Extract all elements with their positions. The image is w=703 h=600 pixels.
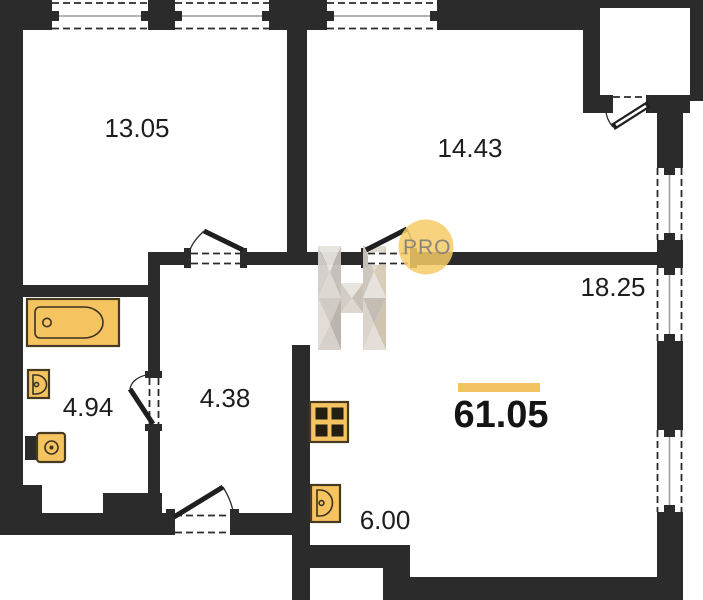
room-label-18-25: 18.25 [580, 272, 645, 302]
wall-bottom-step-block [383, 545, 410, 600]
wall-between-bedrooms [287, 30, 307, 253]
bathtub [27, 299, 119, 346]
room-label-6-00: 6.00 [360, 505, 411, 535]
niche-bottom-right [652, 95, 690, 113]
total-area: 61.05 [453, 383, 548, 436]
total-area-label: 61.05 [453, 394, 548, 436]
room-label-4-94: 4.94 [63, 392, 114, 422]
wall-bottom-left-a [0, 513, 168, 535]
window-right-1 [658, 168, 682, 240]
wall-bathroom-top [23, 285, 148, 297]
watermark-pro-badge: PRO [399, 220, 454, 275]
window-top-3 [327, 3, 437, 29]
toilet [25, 433, 65, 462]
window-top-1 [52, 3, 148, 29]
door-entrance [174, 487, 233, 535]
room-label-4-38: 4.38 [200, 383, 251, 413]
room-label-14-43: 14.43 [437, 133, 502, 163]
stove [310, 402, 348, 442]
jamb-entry-right [230, 509, 239, 535]
niche-right-wall [690, 0, 703, 101]
window-right-2 [658, 268, 682, 341]
wall-bathroom-bottom-step2 [103, 493, 162, 513]
door-bedroom-1 [190, 231, 243, 265]
wall-left [0, 0, 23, 533]
door-bathroom [130, 374, 160, 424]
total-area-underline [458, 383, 540, 392]
wall-hall-kitchen [292, 345, 310, 600]
wall-top-right [437, 0, 583, 30]
wall-mid-horizontal-b [245, 252, 363, 265]
wall-mid-horizontal-a [148, 252, 188, 265]
wall-hall-bathroom-upper [148, 265, 160, 377]
niche-top-wall [600, 0, 690, 8]
wall-right-pier-3 [657, 341, 683, 430]
jamb-balcony-left [606, 95, 613, 113]
floor-plan: PRO 13.05 14.43 18.25 4.94 4.38 6.00 61.… [0, 0, 703, 600]
kitchen-sink [311, 485, 340, 522]
room-label-13-05: 13.05 [104, 113, 169, 143]
wall-top-pier-1 [148, 0, 175, 30]
wall-bottom-lower [410, 577, 683, 600]
niche-left-wall [583, 0, 600, 113]
jamb-bath-bottom [145, 424, 162, 431]
washbasin [28, 370, 49, 398]
jamb-entry-left [166, 509, 175, 535]
window-top-2 [175, 3, 269, 29]
wall-right-pier-2 [657, 240, 683, 268]
pro-badge-text: PRO [403, 236, 452, 259]
wall-top-pier-2 [269, 0, 327, 30]
wall-bathroom-bottom-step1 [23, 485, 42, 513]
wall-right-pier-1 [657, 113, 683, 168]
window-right-3 [658, 430, 682, 512]
jamb-door1-left [184, 248, 191, 268]
